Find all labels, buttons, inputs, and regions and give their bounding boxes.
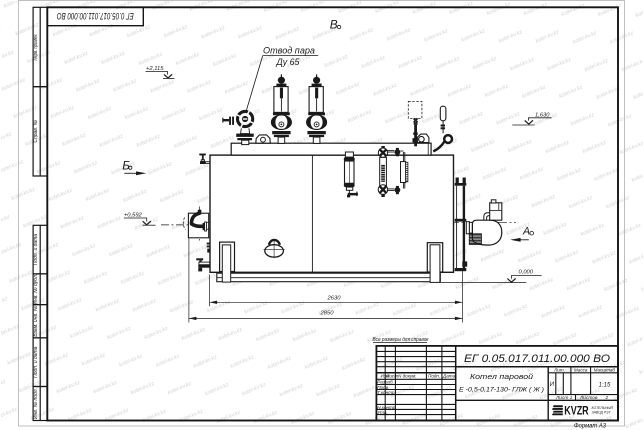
svg-text:И: И [550, 382, 555, 388]
svg-text:ЕГ 0.05.017.011.00.000 ВО: ЕГ 0.05.017.011.00.000 ВО [464, 353, 611, 365]
svg-text:КОТЕЛЬНЫЙ: КОТЕЛЬНЫЙ [592, 406, 614, 410]
svg-text:В: В [330, 17, 338, 31]
svg-text:Инв. № подл.: Инв. № подл. [33, 388, 39, 419]
svg-text:Подп. и дата: Подп. и дата [33, 346, 39, 378]
svg-text:Инв. № дубл.: Инв. № дубл. [33, 274, 39, 305]
svg-text:Утв.: Утв. [377, 410, 387, 415]
svg-text:Справ. №: Справ. № [33, 119, 39, 142]
svg-text:1:15: 1:15 [599, 383, 611, 389]
svg-text:Лит.: Лит. [553, 368, 565, 373]
svg-text:Взам. инв. №: Взам. инв. № [33, 305, 39, 337]
svg-text:Т.контр.: Т.контр. [377, 390, 396, 395]
svg-text:ЕГ 0.05.017.011.00.000 ВО: ЕГ 0.05.017.011.00.000 ВО [57, 11, 134, 21]
svg-text:Лист: Лист [385, 374, 398, 379]
svg-text:ЗАВОД РЭТ: ЗАВОД РЭТ [592, 410, 612, 414]
svg-text:Е -0,5-0,17-130- ГЛЖ ( Ж ): Е -0,5-0,17-130- ГЛЖ ( Ж ) [459, 386, 544, 393]
svg-text:Б: Б [122, 158, 130, 172]
svg-text:Ду 65: Ду 65 [276, 57, 300, 67]
svg-text:Перв. примен.: Перв. примен. [33, 34, 39, 61]
svg-text:Подп. и дата: Подп. и дата [33, 234, 39, 266]
svg-text:2: 2 [605, 395, 609, 401]
svg-text:Масса: Масса [574, 368, 588, 373]
svg-text:Формат А3: Формат А3 [574, 422, 606, 429]
svg-text:А: А [522, 225, 530, 237]
svg-text:Отвод пара: Отвод пара [263, 46, 315, 56]
svg-text:KVZR: KVZR [564, 405, 589, 417]
svg-text:Все размеры для справок: Все размеры для справок [373, 337, 429, 343]
svg-text:Дата: Дата [442, 374, 456, 379]
svg-text:N докум.: N докум. [398, 374, 417, 379]
svg-text:2630: 2630 [327, 296, 342, 302]
svg-text:Подп.: Подп. [428, 374, 440, 379]
svg-text:Масштаб: Масштаб [594, 368, 616, 373]
svg-text:2850: 2850 [320, 311, 335, 317]
svg-text:Лист 1: Лист 1 [555, 395, 573, 401]
svg-text:0,000: 0,000 [519, 269, 534, 275]
svg-text:Листов: Листов [579, 395, 598, 401]
svg-text:Котел паровой: Котел паровой [470, 372, 534, 381]
